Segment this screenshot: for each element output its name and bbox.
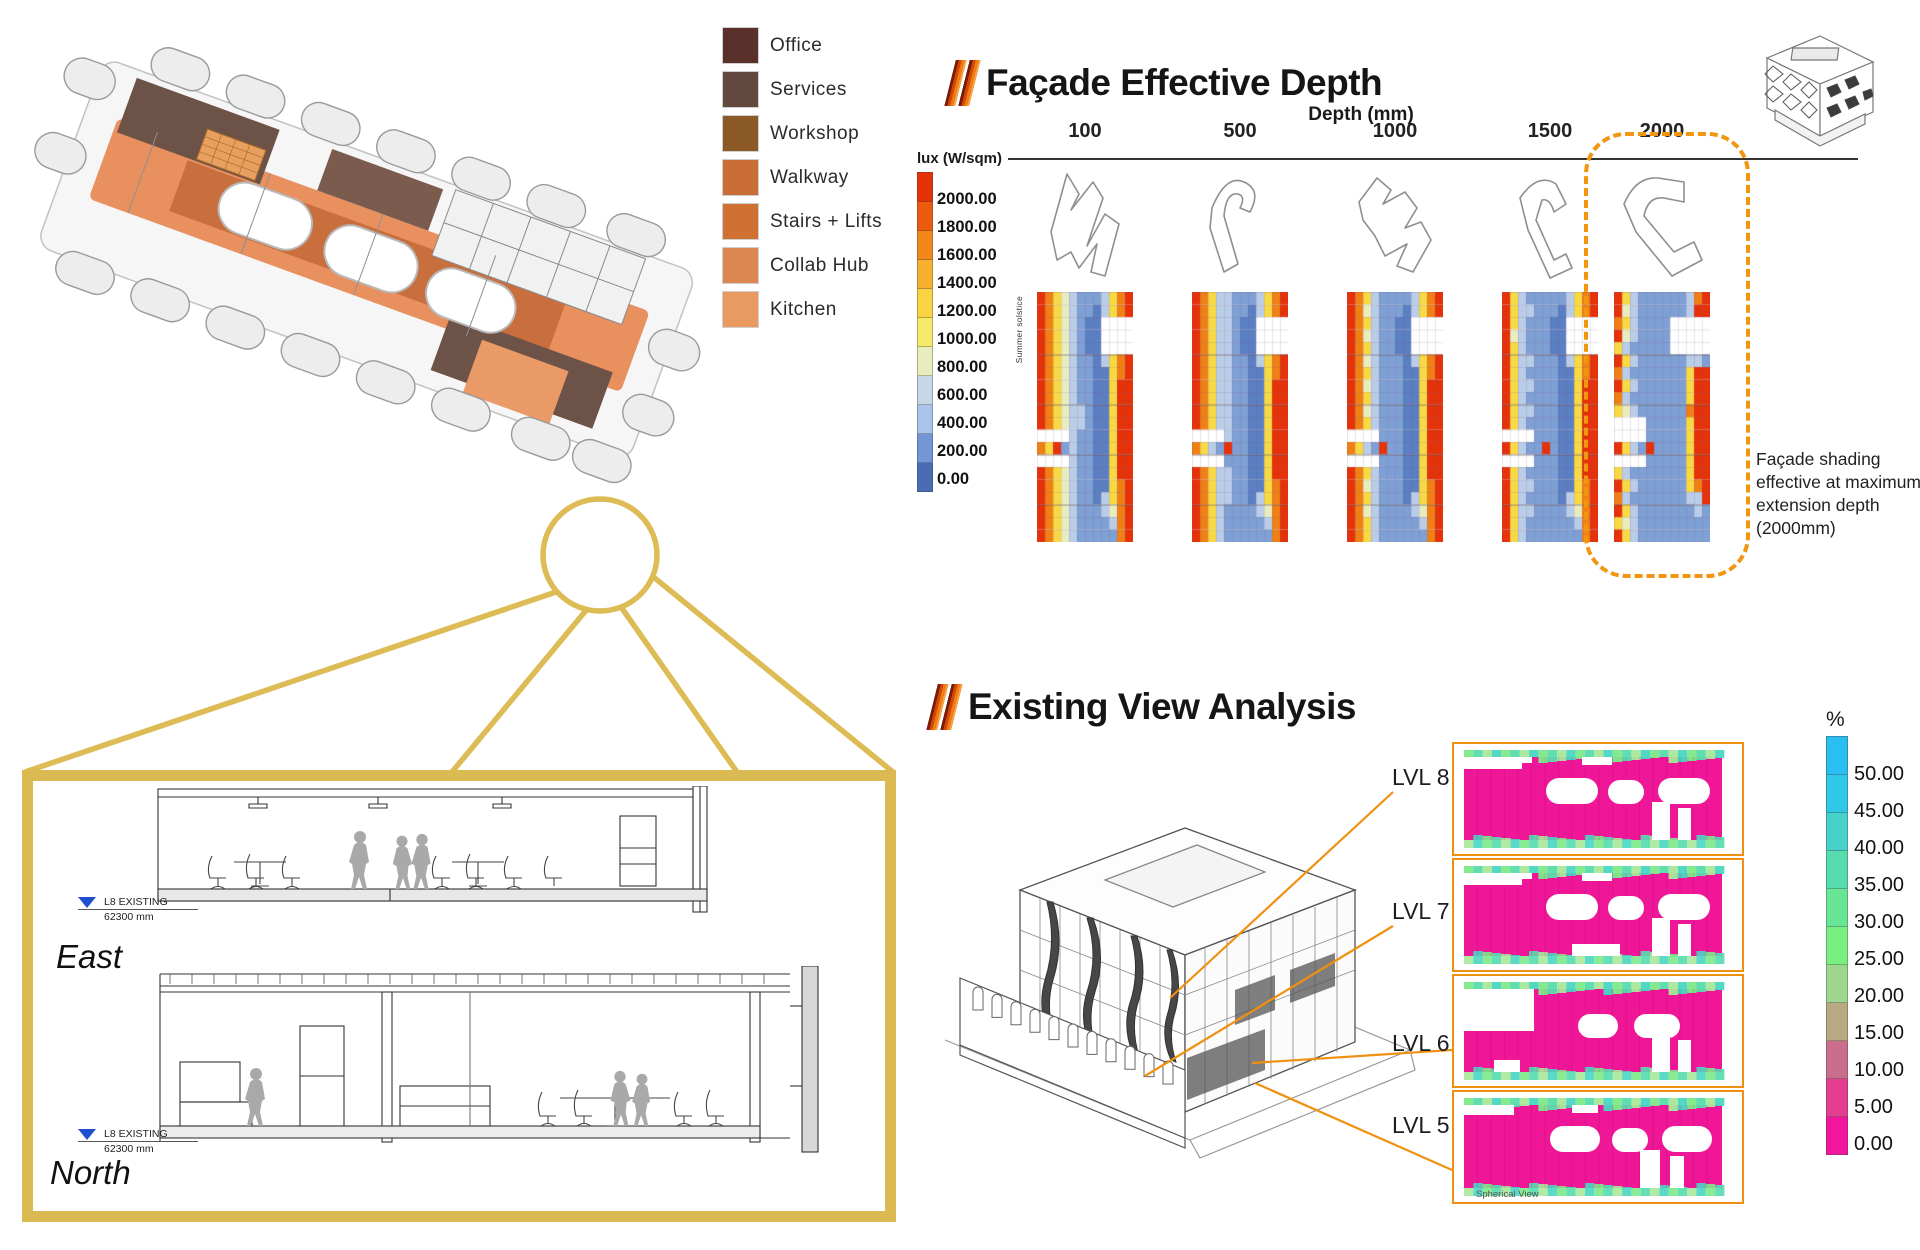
scale-tick-label: 1000.00	[937, 330, 997, 349]
summer-solstice-label: Summer solstice	[1014, 296, 1024, 363]
legend-swatch	[722, 247, 759, 284]
max-depth-highlight-box	[1584, 132, 1750, 578]
view-heatmap	[1454, 1092, 1738, 1198]
scale-segment	[917, 202, 933, 231]
stripe-accent-icon	[926, 684, 963, 730]
level-line	[78, 909, 198, 910]
scale-tick-label: 45.00	[1854, 800, 1904, 823]
scale-tick-label: 0.00	[1854, 1133, 1893, 1156]
east-section-drawing	[150, 786, 730, 920]
scale-segment	[1826, 1003, 1848, 1041]
scale-tick-label: 0.00	[937, 470, 969, 489]
scale-segment	[917, 172, 933, 202]
legend-swatch	[722, 27, 759, 64]
scale-segment	[1826, 889, 1848, 927]
legend-swatch	[722, 159, 759, 196]
callout-funnel	[0, 480, 920, 780]
view-heatmap-panel-lvl-6	[1452, 974, 1744, 1088]
scale-tick-label: 35.00	[1854, 874, 1904, 897]
scale-segment	[917, 347, 933, 376]
scale-tick-label: 1400.00	[937, 274, 997, 293]
scale-tick-label: 30.00	[1854, 911, 1904, 934]
legend-swatch	[722, 115, 759, 152]
scale-tick-label: 400.00	[937, 414, 987, 433]
legend-label: Stairs + Lifts	[770, 211, 882, 233]
scale-tick-label: 20.00	[1854, 985, 1904, 1008]
level-label-5: LVL 5	[1392, 1112, 1450, 1139]
ceiling-joists	[170, 974, 764, 984]
facade-section-title: Façade Effective Depth	[950, 60, 1382, 106]
scale-tick-label: 1200.00	[937, 302, 997, 321]
north-level-marker: L8 EXISTING 62300 mm	[78, 1128, 208, 1155]
percent-scale-title: %	[1826, 708, 1845, 732]
scale-segment	[1826, 775, 1848, 813]
scale-tick-label: 5.00	[1854, 1096, 1893, 1119]
east-level-marker: L8 EXISTING 62300 mm	[78, 896, 208, 923]
scale-segment	[1826, 813, 1848, 851]
legend-item-collab-hub: Collab Hub	[722, 248, 882, 283]
legend-label: Kitchen	[770, 299, 837, 321]
scale-segment	[917, 231, 933, 260]
legend-item-services: Services	[722, 72, 882, 107]
scale-segment	[917, 376, 933, 405]
scale-tick-label: 1600.00	[937, 246, 997, 265]
view-heatmap	[1454, 860, 1738, 966]
stripe-accent-icon	[944, 60, 981, 106]
legend-label: Walkway	[770, 167, 849, 189]
legend-label: Services	[770, 79, 847, 101]
north-section-drawing	[150, 966, 870, 1170]
scale-tick-label: 200.00	[937, 442, 987, 461]
view-heatmap	[1454, 976, 1738, 1082]
shading-device-sketch	[1037, 168, 1133, 280]
scale-tick-label: 50.00	[1854, 763, 1904, 786]
depth-value-1500: 1500	[1490, 120, 1610, 143]
lux-scale-bar	[917, 172, 931, 492]
scale-segment	[917, 434, 933, 463]
facade-annotation: Façade shading effective at maximum exte…	[1756, 448, 1920, 540]
facade-irradiance-heatmap	[1347, 292, 1443, 542]
furniture	[538, 1090, 724, 1126]
scale-segment	[917, 260, 933, 289]
east-label: East	[56, 938, 122, 976]
legend-swatch	[722, 203, 759, 240]
scale-tick-label: 40.00	[1854, 837, 1904, 860]
view-title-text: Existing View Analysis	[968, 686, 1356, 728]
scale-segment	[1826, 927, 1848, 965]
legend-label: Collab Hub	[770, 255, 869, 277]
scale-tick-label: 1800.00	[937, 218, 997, 237]
scale-segment	[1826, 851, 1848, 889]
facade-irradiance-heatmap	[1192, 292, 1288, 542]
scale-tick-label: 25.00	[1854, 948, 1904, 971]
view-heatmap-panel-lvl-5: Spherical View	[1452, 1090, 1744, 1204]
level-leader-lines	[930, 740, 1470, 1230]
facade-title-text: Façade Effective Depth	[986, 62, 1382, 104]
legend-swatch	[722, 71, 759, 108]
legend-swatch	[722, 291, 759, 328]
scale-segment	[1826, 1079, 1848, 1117]
scale-tick-label: 600.00	[937, 386, 987, 405]
scale-segment	[917, 289, 933, 318]
level-label-6: LVL 6	[1392, 1030, 1450, 1057]
presentation-board: OfficeServicesWorkshopWalkwayStairs + Li…	[0, 0, 1920, 1250]
callout-circle	[543, 499, 657, 611]
level-triangle-icon	[78, 897, 96, 908]
scale-tick-label: 15.00	[1854, 1022, 1904, 1045]
view-heatmap	[1454, 744, 1738, 850]
level-line	[78, 1141, 198, 1142]
scale-tick-label: 800.00	[937, 358, 987, 377]
plan-legend: OfficeServicesWorkshopWalkwayStairs + Li…	[722, 28, 882, 336]
spherical-view-label: Spherical View	[1476, 1189, 1539, 1200]
scale-tick-label: 10.00	[1854, 1059, 1904, 1082]
shading-device-sketch	[1192, 168, 1288, 280]
level-label-8: LVL 8	[1392, 764, 1450, 791]
north-label: North	[50, 1154, 131, 1192]
legend-item-office: Office	[722, 28, 882, 63]
people-silhouettes	[245, 1068, 650, 1126]
scale-segment	[917, 463, 933, 492]
depth-value-1000: 1000	[1335, 120, 1455, 143]
scale-segment	[1826, 1117, 1848, 1155]
scale-segment	[1826, 736, 1848, 775]
scale-segment	[917, 405, 933, 434]
percent-scale-bar	[1826, 736, 1846, 1155]
legend-item-workshop: Workshop	[722, 116, 882, 151]
scale-tick-label: 2000.00	[937, 190, 997, 209]
shading-device-sketch	[1347, 168, 1443, 280]
scale-segment	[917, 318, 933, 347]
legend-item-stairs-lifts: Stairs + Lifts	[722, 204, 882, 239]
view-heatmap-panel-lvl-8	[1452, 742, 1744, 856]
view-analysis-panels: Spherical View	[1452, 742, 1744, 1206]
scale-segment	[1826, 1041, 1848, 1079]
scale-segment	[1826, 965, 1848, 1003]
level-label-7: LVL 7	[1392, 898, 1450, 925]
facade-irradiance-heatmap	[1037, 292, 1133, 542]
depth-value-100: 100	[1025, 120, 1145, 143]
depth-value-500: 500	[1180, 120, 1300, 143]
legend-label: Workshop	[770, 123, 859, 145]
legend-item-walkway: Walkway	[722, 160, 882, 195]
view-heatmap-panel-lvl-7	[1452, 858, 1744, 972]
legend-label: Office	[770, 35, 822, 57]
legend-item-kitchen: Kitchen	[722, 292, 882, 327]
view-section-title: Existing View Analysis	[932, 684, 1356, 730]
lux-scale-title: lux (W/sqm)	[917, 150, 1002, 167]
level-triangle-icon	[78, 1129, 96, 1140]
